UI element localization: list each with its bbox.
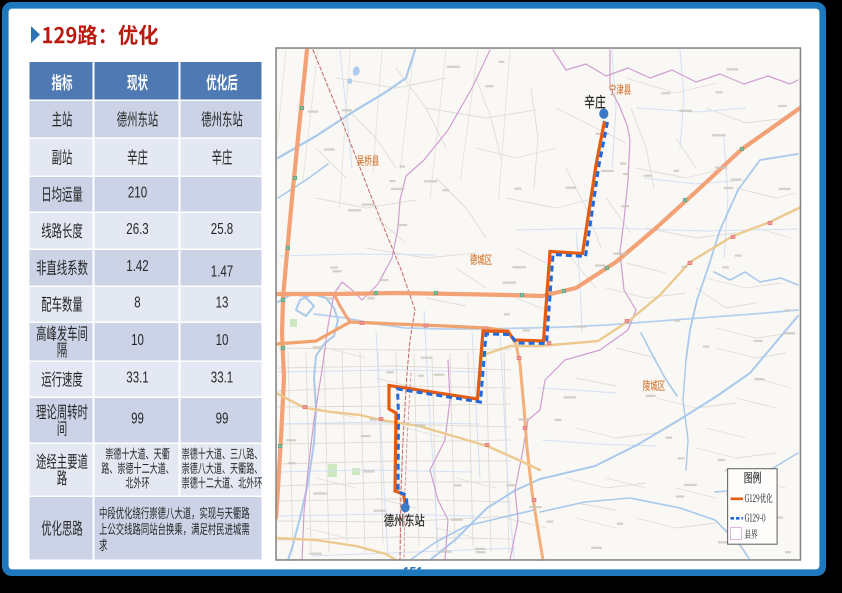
svg-text:1.47: 1.47 [211, 262, 234, 280]
svg-text:10: 10 [131, 330, 144, 348]
svg-text:99: 99 [216, 409, 229, 427]
svg-text:33.1: 33.1 [211, 368, 234, 386]
svg-text:99: 99 [131, 409, 144, 427]
svg-text:210: 210 [128, 183, 147, 201]
svg-text:8: 8 [134, 293, 141, 311]
svg-text:13: 13 [216, 293, 229, 311]
svg-text:26.3: 26.3 [126, 219, 149, 237]
svg-text:25.8: 25.8 [211, 219, 234, 237]
svg-text:33.1: 33.1 [126, 368, 149, 386]
svg-text:1.42: 1.42 [126, 256, 149, 274]
svg-text:10: 10 [216, 330, 229, 348]
